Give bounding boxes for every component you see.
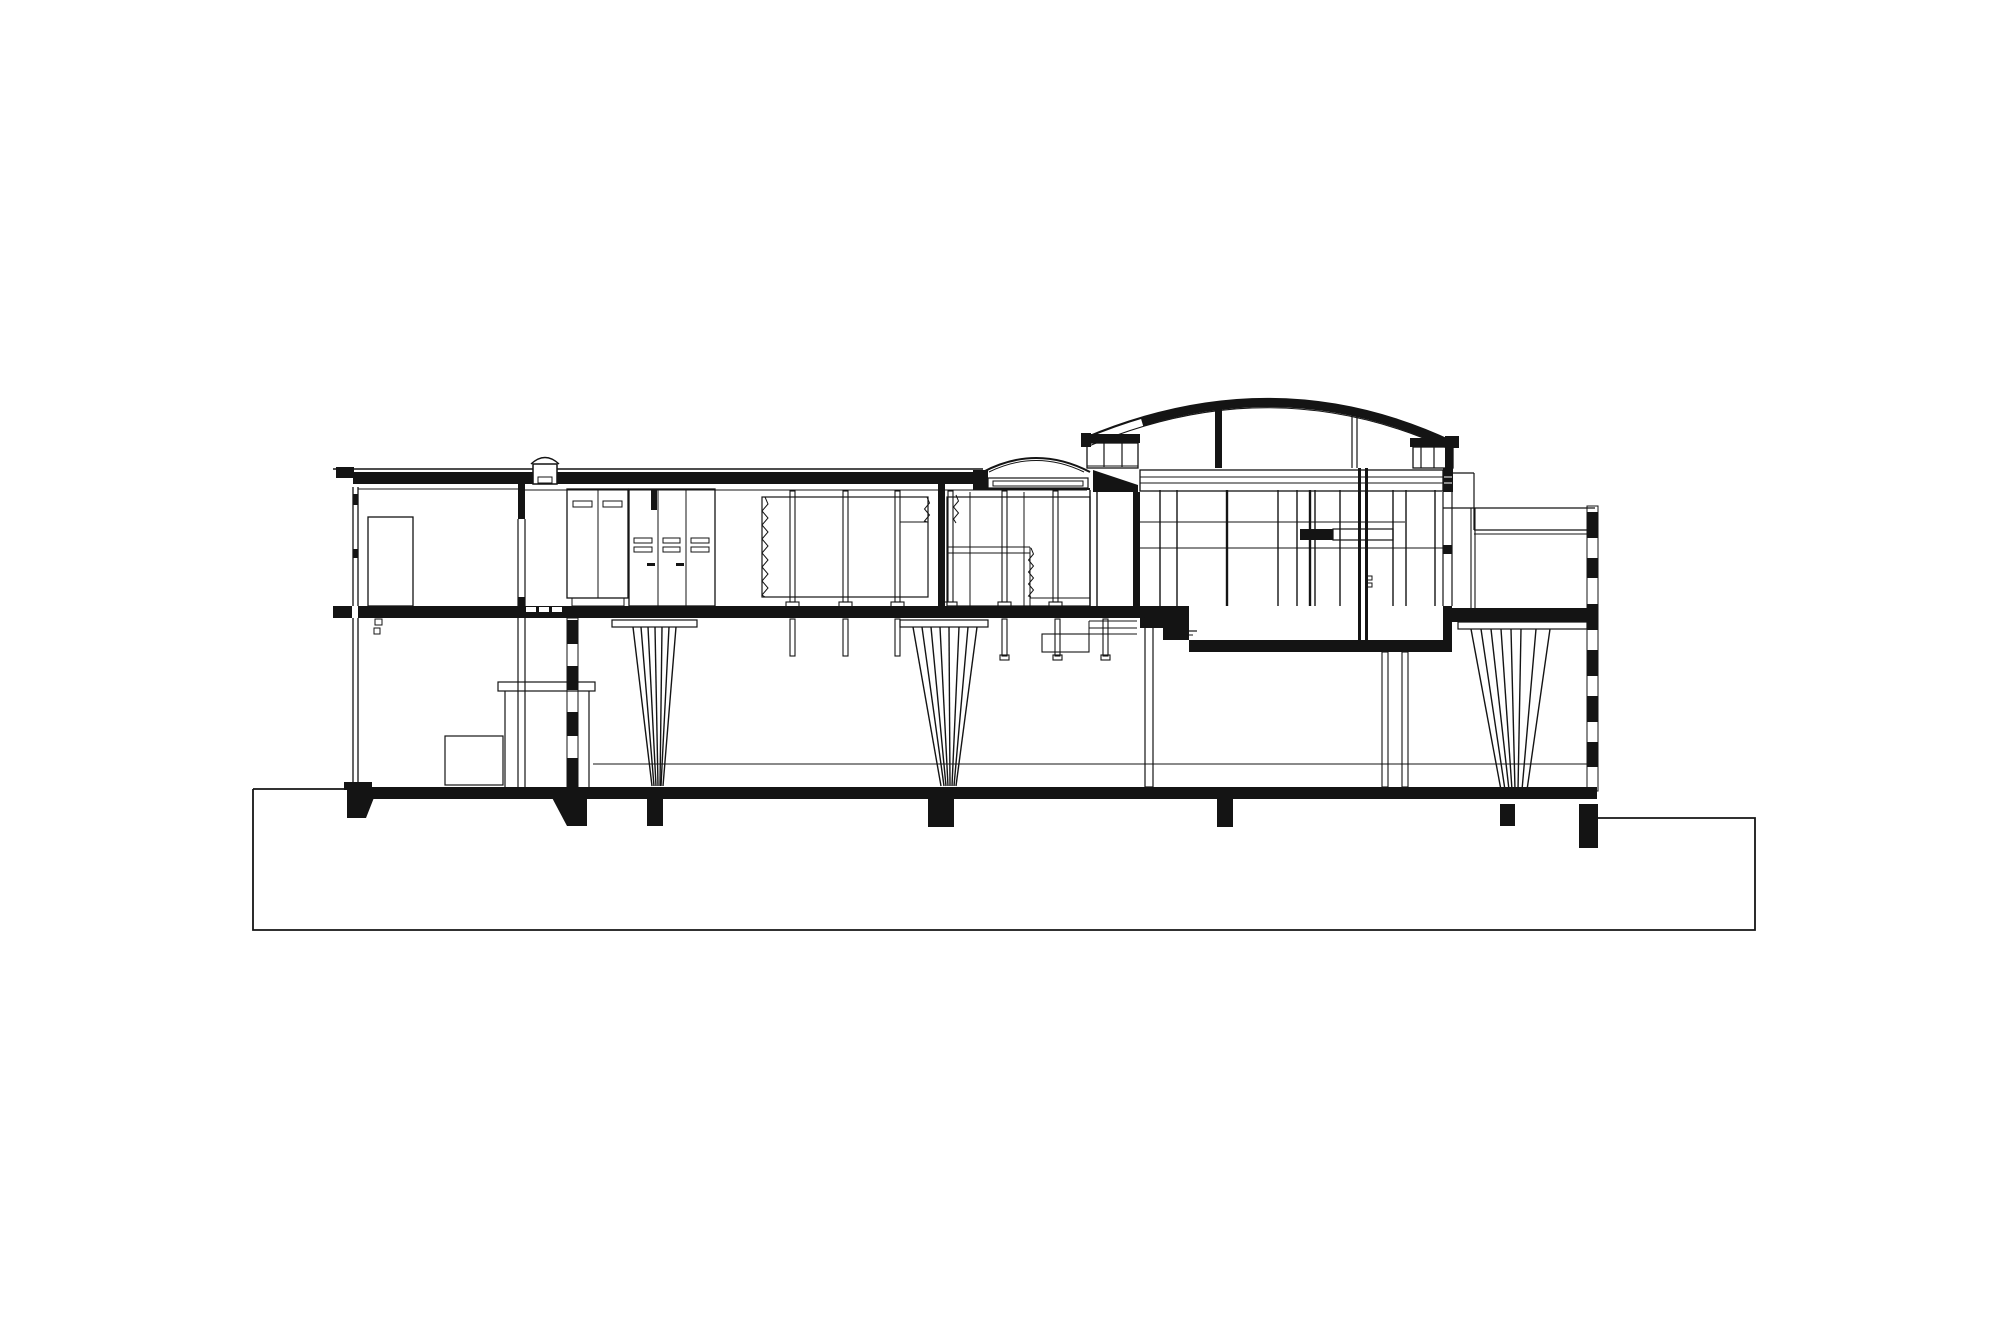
site-outline xyxy=(253,789,1755,930)
cabinet-a-drawer-1 xyxy=(573,501,592,507)
mid-column-2 xyxy=(843,491,848,602)
basement-checker-pier-block-4 xyxy=(567,758,578,787)
mid-wall-hatch xyxy=(954,495,959,523)
clerestory-left-base-wedge xyxy=(1093,470,1138,492)
trestle-left-capital xyxy=(612,620,697,627)
trestle-right-leg-6 xyxy=(1518,629,1521,790)
floor-edge-stub xyxy=(333,606,352,618)
left-footing xyxy=(347,790,377,818)
trestle-right-capital xyxy=(1458,622,1587,629)
basement-stub-column-2 xyxy=(843,619,848,656)
clerestory-right-wall xyxy=(1445,447,1453,469)
hall-sunken-slab xyxy=(1189,640,1445,652)
trestle-right-footing xyxy=(1500,804,1515,826)
basement-stub-column-4 xyxy=(1002,619,1007,656)
cabinet-b-drawer-5 xyxy=(691,538,709,543)
storage-room-outline xyxy=(762,497,928,597)
terrace-slab xyxy=(1452,608,1598,622)
trestle-mid-leg-5 xyxy=(949,627,950,786)
storage-room-hatch xyxy=(762,497,768,597)
entry-arch-inner xyxy=(989,461,1084,473)
skylight-curb-arc xyxy=(531,458,559,465)
end-checker-pier-block-6 xyxy=(1587,742,1598,767)
hall-footing xyxy=(1217,797,1233,827)
basement-column-b xyxy=(1402,652,1408,787)
left-wall-glyph-1 xyxy=(375,619,382,625)
trestle-right-leg-7 xyxy=(1522,629,1536,790)
cabinet-b-handle-1 xyxy=(647,563,655,566)
end-checker-pier-block-3 xyxy=(1587,604,1598,630)
skylight-curb xyxy=(533,464,557,484)
cabinet-a-drawer-2 xyxy=(603,501,622,507)
entry-arch-glass xyxy=(993,481,1083,486)
trestle-mid-capital xyxy=(900,620,988,627)
cabinet-b-drawer-2 xyxy=(634,547,652,552)
basement-column-main xyxy=(1145,618,1153,787)
trestle-mid-leg-1 xyxy=(913,627,941,786)
clerestory-left-box xyxy=(1087,443,1138,468)
cabinet-b-drawer-4 xyxy=(663,547,680,552)
hall-bridge-slab xyxy=(1300,529,1333,540)
hall-step-2 xyxy=(1163,617,1189,640)
hall-right-riser xyxy=(1443,606,1452,652)
hall-fascia xyxy=(1140,470,1443,491)
cabinet-b-drawer-1 xyxy=(634,538,652,543)
hall-right-wall-block xyxy=(1443,545,1452,554)
trestle-right-leg-1 xyxy=(1471,629,1501,790)
roof-eave-right-cap xyxy=(1445,436,1459,448)
mid-column-6 xyxy=(1053,491,1058,602)
hall-column-flange-right xyxy=(1365,468,1368,640)
roof-left-cap xyxy=(336,467,354,478)
trestle-right-leg-8 xyxy=(1527,629,1550,790)
basement-slab xyxy=(347,787,1597,799)
end-checker-pier-block-5 xyxy=(1587,696,1598,722)
portal-frame-head xyxy=(498,682,595,691)
cabinet-a-plinth xyxy=(572,598,624,606)
trestle-right-leg-5 xyxy=(1511,629,1515,790)
hall-fascia-end-cap xyxy=(1443,468,1453,492)
storage-room-notch xyxy=(900,497,928,522)
floor-joint-3 xyxy=(552,607,562,612)
cabinet-b-drawer-3 xyxy=(663,538,680,543)
gallery-room-hatch xyxy=(1029,548,1034,597)
hall-bridge-outline xyxy=(1333,529,1393,540)
basement-checker-pier-block-1 xyxy=(567,620,578,644)
left-wall-block-1 xyxy=(353,494,358,505)
corridor-wall-head xyxy=(518,484,525,519)
left-door xyxy=(368,517,413,606)
floor-joint-2 xyxy=(539,607,549,612)
hall-step-1 xyxy=(1140,617,1164,628)
storage-notch-hatch xyxy=(925,497,930,522)
basement-column-a xyxy=(1382,652,1388,787)
hall-column-flange-left xyxy=(1358,468,1361,640)
gallery-room-outline xyxy=(947,497,1090,606)
basement-checker-pier-block-3 xyxy=(567,712,578,736)
end-checker-pier-block-4 xyxy=(1587,650,1598,676)
left-wall-glyph-2 xyxy=(374,628,380,634)
pier-foundation xyxy=(1579,804,1598,848)
hall-step-slab xyxy=(1140,606,1189,618)
basement-stub-column-3 xyxy=(895,619,900,656)
floor-joint-1 xyxy=(526,607,536,612)
plant-box xyxy=(445,736,503,785)
end-checker-pier-block-1 xyxy=(1587,512,1598,538)
mid-column-1 xyxy=(790,491,795,602)
vault-shell-inner-arc xyxy=(1089,408,1449,449)
basement-stub-column-5 xyxy=(1055,619,1060,656)
left-wall-block-2 xyxy=(353,549,358,558)
cabinet-b-handle-2 xyxy=(676,563,684,566)
cabinet-beam xyxy=(651,489,657,510)
roof-end-cap xyxy=(973,470,988,490)
end-checker-pier-block-2 xyxy=(1587,558,1598,578)
hall-left-black-mullion xyxy=(1133,492,1140,606)
vault-rib xyxy=(1215,408,1222,468)
trestle-left-footing xyxy=(647,792,663,826)
corridor-footing xyxy=(549,792,587,826)
trestle-mid-footing xyxy=(928,797,954,827)
corridor-wall-base xyxy=(518,597,525,607)
mid-cut-wall xyxy=(938,472,945,608)
floor-slab xyxy=(358,606,1140,618)
basement-stub-column-6 xyxy=(1103,619,1108,656)
basement-stub-column-1 xyxy=(790,619,795,656)
building-section-drawing xyxy=(0,0,2000,1320)
cabinet-b-drawer-6 xyxy=(691,547,709,552)
mid-column-3 xyxy=(895,491,900,602)
roof-band xyxy=(353,472,983,484)
drawing-page xyxy=(0,0,2000,1320)
basement-checker-pier-block-2 xyxy=(567,666,578,690)
hall-stair-outline xyxy=(1042,634,1089,652)
